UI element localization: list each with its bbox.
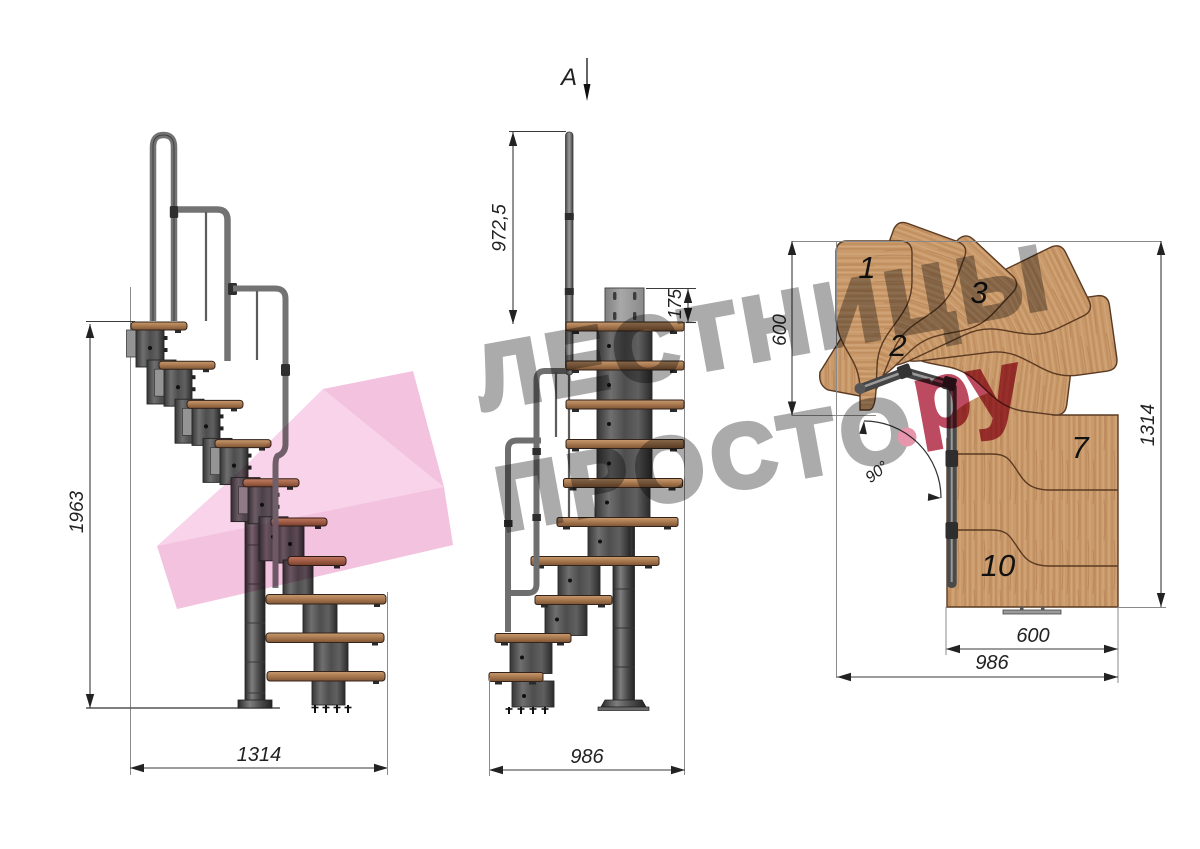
- svg-text:600: 600: [1016, 625, 1049, 647]
- svg-text:7: 7: [1071, 430, 1090, 465]
- svg-text:972,5: 972,5: [490, 204, 511, 252]
- svg-text:10: 10: [981, 548, 1015, 583]
- svg-text:986: 986: [570, 746, 604, 768]
- svg-text:1314: 1314: [237, 744, 282, 766]
- svg-text:1314: 1314: [1138, 404, 1159, 446]
- svg-text:986: 986: [975, 652, 1009, 674]
- svg-text:A: A: [559, 64, 577, 91]
- svg-text:1963: 1963: [67, 490, 88, 533]
- svg-text:ру: ру: [904, 329, 1029, 452]
